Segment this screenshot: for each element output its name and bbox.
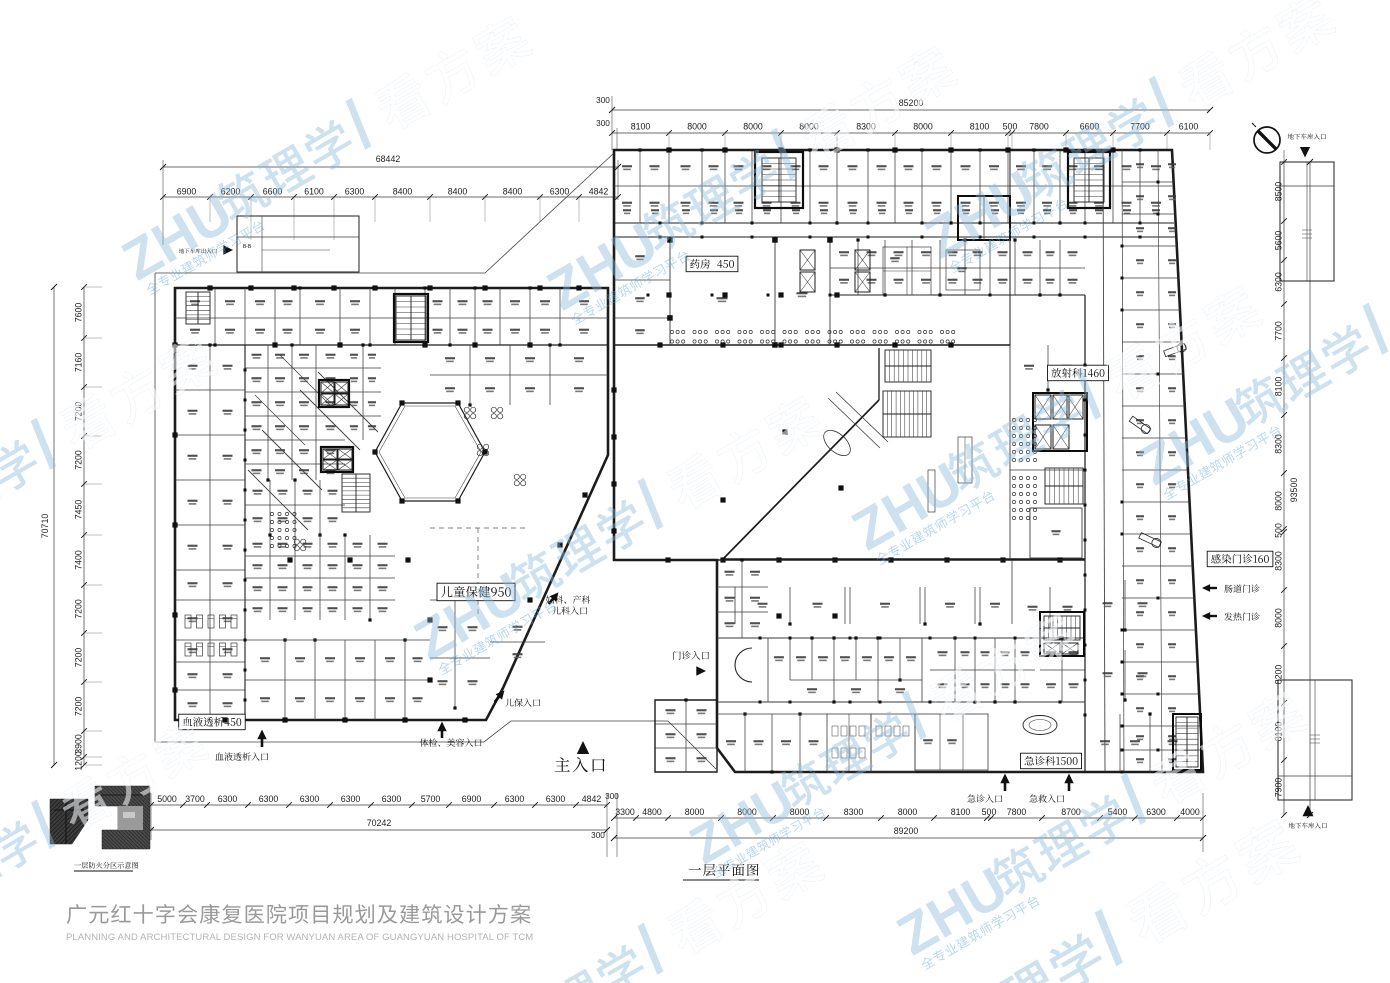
- svg-text:8000: 8000: [687, 122, 707, 132]
- svg-text:6300: 6300: [382, 794, 402, 804]
- svg-text:500: 500: [1274, 523, 1284, 538]
- svg-text:6300: 6300: [300, 794, 320, 804]
- svg-text:8000: 8000: [1274, 608, 1284, 628]
- svg-text:6300: 6300: [1146, 807, 1166, 817]
- svg-text:5600: 5600: [1274, 231, 1284, 251]
- svg-text:3700: 3700: [185, 794, 205, 804]
- svg-text:6300: 6300: [345, 187, 365, 197]
- svg-text:6100: 6100: [1179, 122, 1199, 132]
- svg-text:3300: 3300: [615, 807, 635, 817]
- svg-text:8000: 8000: [1274, 491, 1284, 511]
- svg-text:7200: 7200: [74, 648, 84, 668]
- svg-text:7600: 7600: [74, 303, 84, 323]
- svg-text:7450: 7450: [74, 500, 84, 520]
- svg-text:7400: 7400: [74, 550, 84, 570]
- svg-text:4800: 4800: [642, 807, 662, 817]
- svg-text:8400: 8400: [503, 187, 523, 197]
- svg-text:6300: 6300: [1274, 272, 1284, 292]
- svg-text:5700: 5700: [421, 794, 441, 804]
- svg-text:7200: 7200: [74, 599, 84, 619]
- svg-text:89200: 89200: [894, 826, 919, 836]
- svg-text:6300: 6300: [218, 794, 238, 804]
- svg-text:8100: 8100: [951, 807, 971, 817]
- svg-text:6300: 6300: [550, 187, 570, 197]
- svg-text:8700: 8700: [1061, 807, 1081, 817]
- svg-text:500: 500: [982, 807, 997, 817]
- svg-text:6100: 6100: [304, 187, 324, 197]
- svg-text:500: 500: [1003, 122, 1018, 132]
- svg-text:8300: 8300: [844, 807, 864, 817]
- svg-text:7700: 7700: [1274, 321, 1284, 341]
- svg-text:6300: 6300: [341, 794, 361, 804]
- svg-text:7800: 7800: [1007, 807, 1027, 817]
- svg-text:300: 300: [591, 831, 605, 840]
- svg-text:8300: 8300: [1274, 551, 1284, 571]
- svg-text:6300: 6300: [259, 794, 279, 804]
- svg-text:6300: 6300: [505, 794, 525, 804]
- svg-text:8400: 8400: [393, 187, 413, 197]
- svg-text:8100: 8100: [631, 122, 651, 132]
- svg-text:8500: 8500: [1274, 182, 1284, 202]
- svg-text:93500: 93500: [1289, 478, 1299, 503]
- svg-text:70710: 70710: [40, 514, 50, 539]
- svg-text:8400: 8400: [448, 187, 468, 197]
- svg-text:4842: 4842: [582, 794, 602, 804]
- svg-text:6300: 6300: [546, 794, 566, 804]
- svg-text:8100: 8100: [970, 122, 990, 132]
- svg-text:7800: 7800: [1029, 122, 1049, 132]
- svg-text:4000: 4000: [1180, 807, 1200, 817]
- svg-text:3900: 3900: [74, 734, 84, 754]
- svg-text:6900: 6900: [462, 794, 482, 804]
- svg-text:5000: 5000: [157, 794, 177, 804]
- svg-text:4842: 4842: [589, 187, 609, 197]
- svg-text:8000: 8000: [898, 807, 918, 817]
- svg-text:8000: 8000: [913, 122, 933, 132]
- svg-text:70242: 70242: [367, 818, 392, 828]
- svg-text:B-B: B-B: [243, 244, 252, 250]
- svg-text:8100: 8100: [1274, 377, 1284, 397]
- svg-text:68442: 68442: [376, 154, 401, 164]
- svg-text:7200: 7200: [74, 450, 84, 470]
- svg-text:300: 300: [596, 119, 610, 128]
- svg-text:1200: 1200: [74, 751, 84, 771]
- svg-text:300: 300: [596, 96, 610, 105]
- svg-text:8000: 8000: [743, 122, 763, 132]
- svg-text:7160: 7160: [74, 353, 84, 373]
- svg-text:7200: 7200: [74, 697, 84, 717]
- svg-text:PLANNING AND ARCHITECTURAL DES: PLANNING AND ARCHITECTURAL DESIGN FOR WA…: [66, 932, 533, 943]
